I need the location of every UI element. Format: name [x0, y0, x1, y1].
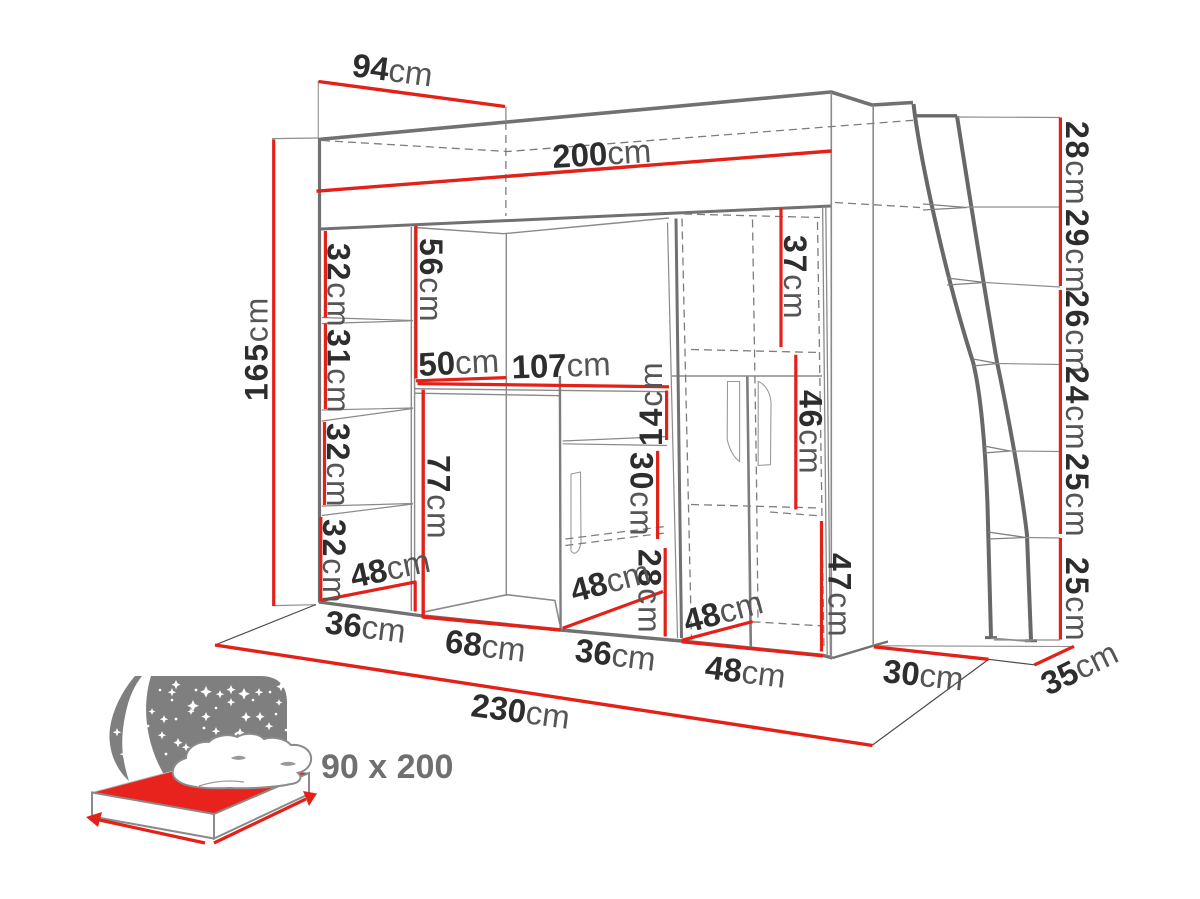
svg-text:31cm: 31cm	[321, 329, 357, 414]
svg-text:47cm: 47cm	[822, 553, 858, 638]
svg-text:56cm: 56cm	[413, 238, 449, 323]
svg-text:165cm: 165cm	[239, 296, 275, 401]
svg-text:77cm: 77cm	[421, 455, 457, 540]
svg-text:107cm: 107cm	[511, 345, 611, 385]
svg-text:28cm: 28cm	[1059, 121, 1095, 206]
svg-text:30cm: 30cm	[624, 452, 660, 537]
svg-text:26cm: 26cm	[1059, 290, 1095, 375]
svg-text:37cm: 37cm	[777, 235, 813, 320]
svg-text:32cm: 32cm	[320, 423, 356, 508]
svg-text:50cm: 50cm	[417, 342, 500, 383]
svg-text:90 x 200: 90 x 200	[321, 748, 453, 786]
svg-text:14cm: 14cm	[633, 361, 669, 446]
svg-text:25cm: 25cm	[1059, 453, 1095, 538]
svg-text:25cm: 25cm	[1059, 557, 1095, 642]
svg-text:29cm: 29cm	[1059, 209, 1095, 294]
svg-text:200cm: 200cm	[551, 132, 652, 175]
svg-text:24cm: 24cm	[1059, 366, 1095, 451]
svg-text:46cm: 46cm	[793, 390, 829, 475]
svg-text:32cm: 32cm	[321, 243, 357, 328]
